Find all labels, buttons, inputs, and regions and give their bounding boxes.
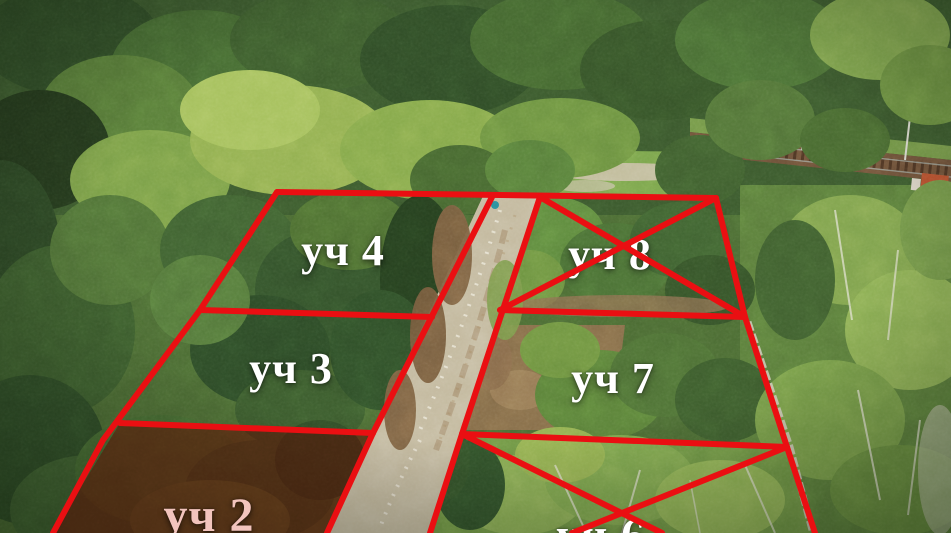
aerial-plot-map: уч 4 уч 3 уч 2 уч 8 уч 7 уч 6 bbox=[0, 0, 951, 533]
plot-8-label: уч 8 bbox=[568, 233, 652, 277]
plot-4-label: уч 4 bbox=[301, 229, 385, 273]
plot-3-label: уч 3 bbox=[249, 347, 333, 391]
plot-2-label: уч 2 bbox=[163, 492, 254, 533]
aerial-photo bbox=[0, 0, 951, 533]
plot-6-label: уч 6 bbox=[556, 513, 645, 533]
plot-7-label: уч 7 bbox=[571, 357, 655, 401]
